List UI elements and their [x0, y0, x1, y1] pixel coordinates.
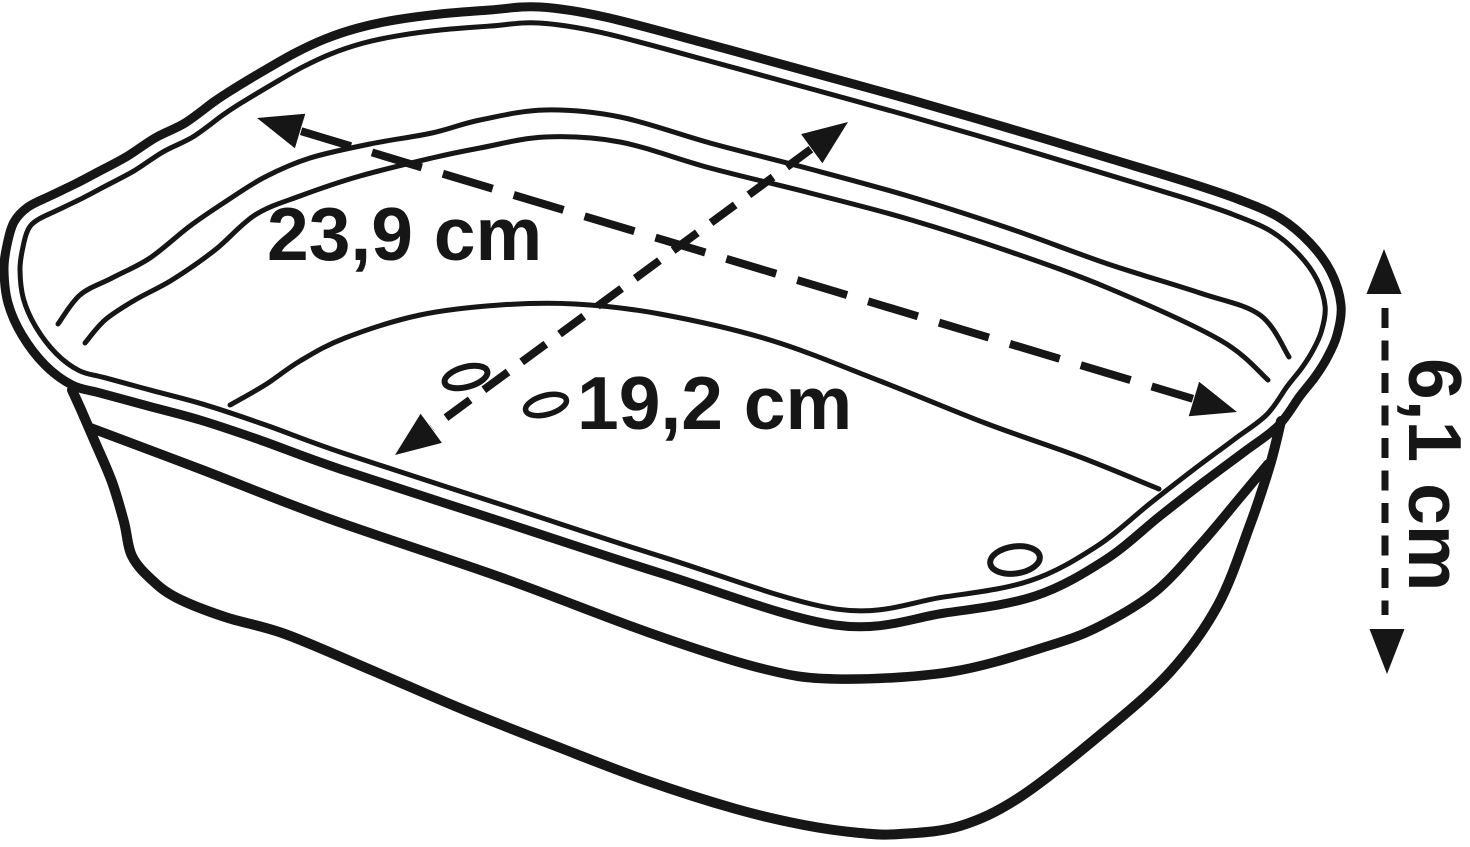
svg-text:23,9 cm: 23,9 cm	[267, 192, 542, 276]
svg-text:19,2 cm: 19,2 cm	[577, 361, 852, 445]
svg-text:6,1 cm: 6,1 cm	[1393, 358, 1470, 592]
